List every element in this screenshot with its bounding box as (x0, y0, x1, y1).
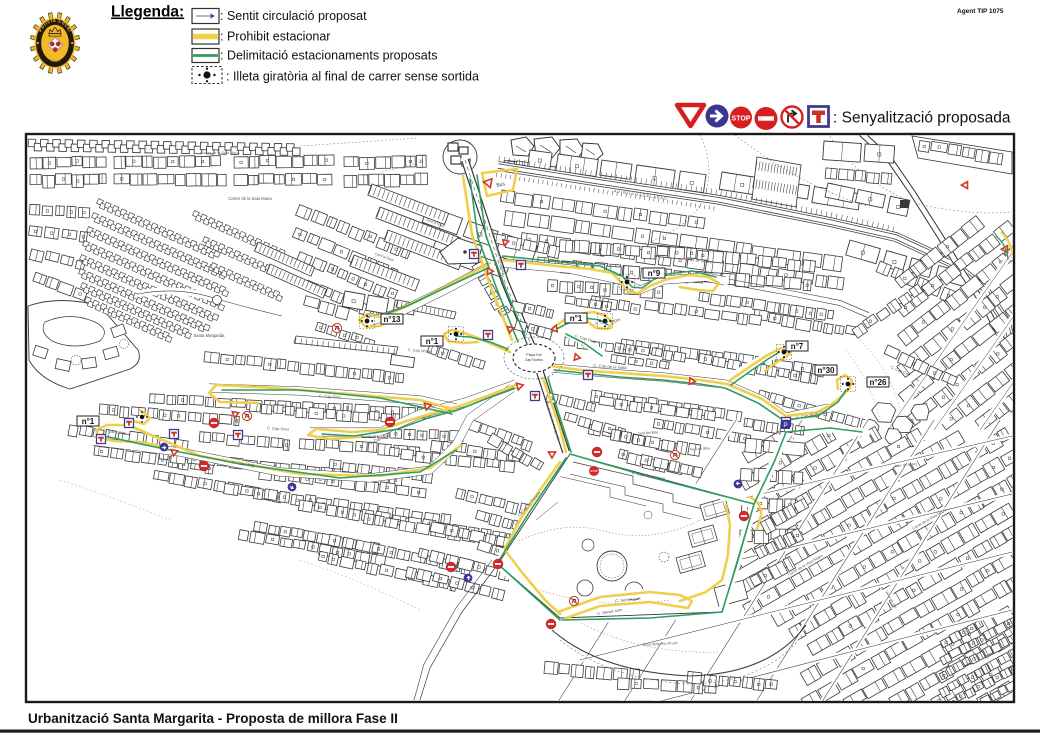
svg-text:n°1: n°1 (426, 337, 439, 346)
svg-text:: Delimitació estacionaments p: : Delimitació estacionaments proposats (220, 49, 437, 63)
svg-text:STOP: STOP (590, 469, 597, 473)
svg-text:Carrer de la Sala Maria: Carrer de la Sala Maria (228, 196, 272, 201)
svg-text:Carrer de la Sala Maria: Carrer de la Sala Maria (200, 151, 240, 155)
svg-text:n°30: n°30 (818, 366, 836, 375)
svg-text:Santa Margarida: Santa Margarida (194, 333, 226, 338)
svg-text:Plaça Del: Plaça Del (526, 353, 542, 357)
svg-text:P: P (783, 422, 787, 429)
svg-text:n°26: n°26 (870, 378, 888, 387)
svg-text:n°1: n°1 (570, 314, 583, 323)
svg-text:Agent TIP 1075: Agent TIP 1075 (957, 8, 1004, 15)
svg-text:: Illeta giratòria al final de: : Illeta giratòria al final de carrer se… (226, 70, 479, 84)
svg-text:Llegenda:: Llegenda: (111, 4, 184, 21)
svg-text:n°9: n°9 (648, 269, 661, 278)
svg-text:n°13: n°13 (384, 315, 402, 324)
svg-text:n°1: n°1 (82, 417, 95, 426)
svg-text:: Sentit circulació proposat: : Sentit circulació proposat (220, 9, 367, 23)
svg-text:Urbanització Santa Margarita -: Urbanització Santa Margarita - Proposta … (28, 711, 398, 726)
svg-text:STOP: STOP (732, 115, 751, 122)
svg-text:Cap Norfeu: Cap Norfeu (525, 358, 543, 362)
svg-text:: Prohibit estacionar: : Prohibit estacionar (220, 30, 330, 44)
svg-text:n°7: n°7 (791, 342, 804, 351)
svg-text:: Senyalització proposada: : Senyalització proposada (833, 110, 1011, 127)
